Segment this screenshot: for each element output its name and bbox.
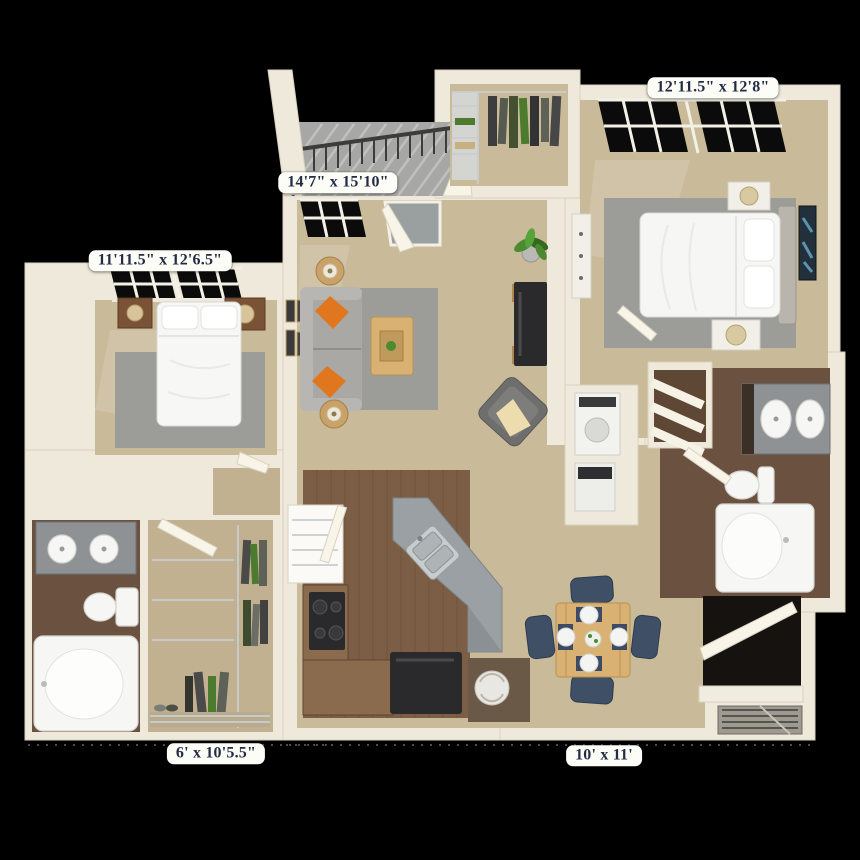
dimension-label-dining-area: 10' x 11' [566, 745, 642, 766]
dimension-label-bedroom-2: 11'11.5" x 12'6.5" [89, 250, 232, 271]
coffee-table-icon [371, 317, 413, 375]
nightstand-icon [712, 320, 760, 350]
dimension-label-living-room: 14'7" x 15'10" [278, 172, 397, 193]
double-vanity-icon [742, 384, 830, 454]
dimension-label-walk-in-closet: 6' x 10'5.5" [167, 743, 265, 764]
plate-icon [610, 628, 628, 646]
centerpiece-icon [585, 631, 601, 647]
linen-closet [648, 362, 712, 457]
water-heater-closet [468, 658, 530, 722]
double-vanity-icon [36, 522, 136, 574]
pantry-icon [288, 505, 347, 583]
dining-table-icon [556, 603, 630, 677]
nightstand-icon [728, 182, 770, 210]
floor-plan-canvas: 12'11.5" x 12'8" 14'7" x 15'10" 11'11.5"… [0, 0, 860, 860]
side-table-lamp-icon [320, 400, 348, 428]
cooktop-icon [309, 592, 345, 650]
side-table-lamp-icon [316, 257, 344, 285]
dresser-icon [572, 214, 591, 298]
sofa-icon [300, 287, 362, 411]
bed-icon [640, 206, 796, 324]
bed-icon [157, 302, 241, 426]
wall-art-icon [799, 206, 816, 280]
master-bedroom [572, 182, 816, 350]
hvac-grille-icon [718, 706, 802, 734]
plate-icon [580, 606, 598, 624]
plate-icon [557, 628, 575, 646]
nightstand-icon [118, 298, 152, 328]
living-window-icon [300, 200, 366, 237]
media-console-icon [512, 282, 547, 366]
bathtub-icon [716, 504, 814, 592]
water-heater-icon [475, 671, 509, 705]
bathtub-icon [34, 636, 138, 731]
plate-icon [580, 654, 598, 672]
dimension-label-master-bedroom: 12'11.5" x 12'8" [648, 77, 779, 98]
hall-floor [213, 468, 280, 515]
balcony-door-icon [382, 202, 440, 252]
floor-plan-3d-render [0, 0, 860, 860]
laundry-closet [565, 385, 638, 525]
